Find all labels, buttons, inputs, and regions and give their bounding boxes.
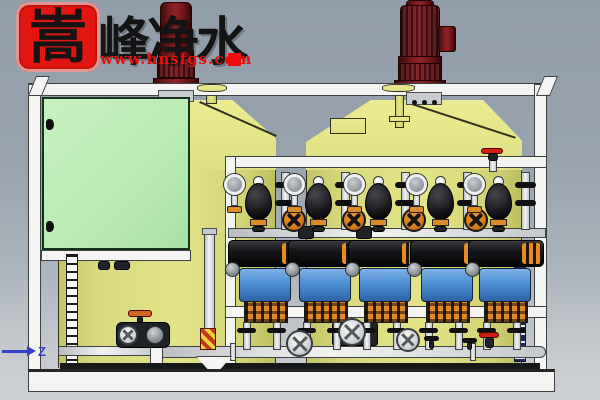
cabinet-terminal-box (98, 261, 110, 270)
drain-flange (118, 325, 138, 345)
pulsation-dampener (305, 183, 332, 220)
t-valve-stem (429, 340, 434, 349)
cad-viewport: Z 嵩 峰净水 www.hnsfgs.com (0, 0, 600, 400)
valve-body (485, 337, 494, 348)
pump-base (484, 301, 528, 323)
base-beam (28, 369, 555, 392)
pump-base (244, 301, 288, 323)
dampener-flange (372, 226, 385, 232)
gauge-union (409, 206, 424, 213)
pump-head (479, 268, 531, 302)
valve-handle (515, 200, 536, 206)
agitator-gearbox (398, 63, 442, 81)
frame-top-right-corner (536, 76, 558, 96)
valve-handle (419, 328, 438, 333)
pressure-gauge (224, 174, 245, 195)
agitator-junction-box (438, 26, 456, 52)
dampener-flange (492, 226, 505, 232)
pump-stroke-knob (465, 262, 480, 277)
pulsation-dampener (427, 183, 454, 220)
logo-seal: 嵩 (16, 2, 100, 72)
pump-base (304, 301, 348, 323)
gauge-union (467, 206, 482, 213)
z-axis-label: Z (38, 344, 46, 359)
left-fill-disc (197, 84, 227, 92)
cabinet-base-rail (41, 250, 191, 261)
right-fill-flange (389, 116, 410, 122)
pulsation-dampener (485, 183, 512, 220)
pump-stroke-knob (285, 262, 300, 277)
bolt (412, 100, 417, 105)
gauge-union (287, 206, 302, 213)
bolt (422, 100, 427, 105)
drain-flange (146, 326, 164, 344)
valve-handle (237, 328, 256, 333)
discharge-stem (273, 322, 281, 350)
right-fill-disc (382, 84, 415, 92)
dampener-flange (434, 226, 447, 232)
pulsation-dampener (245, 183, 272, 220)
url-accent-square (228, 53, 241, 66)
gauge-union (347, 206, 362, 213)
axis-triad: Z (2, 342, 52, 360)
watermark-logo: 嵩 峰净水 www.hnsfgs.com (0, 0, 260, 80)
pressure-gauge (284, 174, 305, 195)
pipe-frame-top-bar (225, 156, 547, 168)
discharge-stem (243, 322, 251, 350)
gauge-union (227, 206, 242, 213)
flanged-valve (286, 330, 313, 357)
frame-top-rail (28, 83, 547, 96)
right-agitator-mount (406, 92, 442, 105)
pump-stroke-knob (345, 262, 360, 277)
dampener-base (250, 219, 267, 226)
pressure-gauge (406, 174, 427, 195)
dampener-base (310, 219, 327, 226)
pump-stroke-knob (407, 262, 422, 277)
dampener-base (490, 219, 507, 226)
discharge-stem (455, 322, 463, 350)
dampener-flange (312, 226, 325, 232)
control-cabinet (42, 97, 190, 250)
pump-stroke-knob (225, 262, 240, 277)
cabinet-hinge (46, 221, 54, 232)
flanged-valve (396, 328, 420, 352)
valve-handle (507, 328, 526, 333)
pump-head (359, 268, 411, 302)
frame-left-post (28, 84, 41, 384)
dosing-pump-group (464, 170, 548, 362)
standpipe-cap (202, 228, 217, 235)
cabinet-hinge (46, 119, 54, 130)
pressure-gauge (344, 174, 365, 195)
right-tank-hatch (330, 118, 366, 134)
cabinet-terminal-box (114, 261, 130, 270)
pump-motor-fan-cover (522, 243, 541, 264)
dampener-base (370, 219, 387, 226)
calibration-column (200, 328, 216, 350)
bolt (432, 100, 437, 105)
t-valve-stem (467, 342, 472, 350)
valve-body (488, 153, 498, 161)
agitator-body (400, 5, 440, 57)
pulsation-dampener (365, 183, 392, 220)
valve-cluster-wheel (338, 318, 366, 346)
dampener-base (432, 219, 449, 226)
valve-handle (515, 182, 536, 188)
dampener-flange (252, 226, 265, 232)
discharge-stem (513, 322, 521, 350)
z-axis-arrow-icon (2, 350, 28, 353)
pressure-gauge (464, 174, 485, 195)
pump-base (364, 301, 408, 323)
seal-character: 嵩 (29, 8, 87, 66)
